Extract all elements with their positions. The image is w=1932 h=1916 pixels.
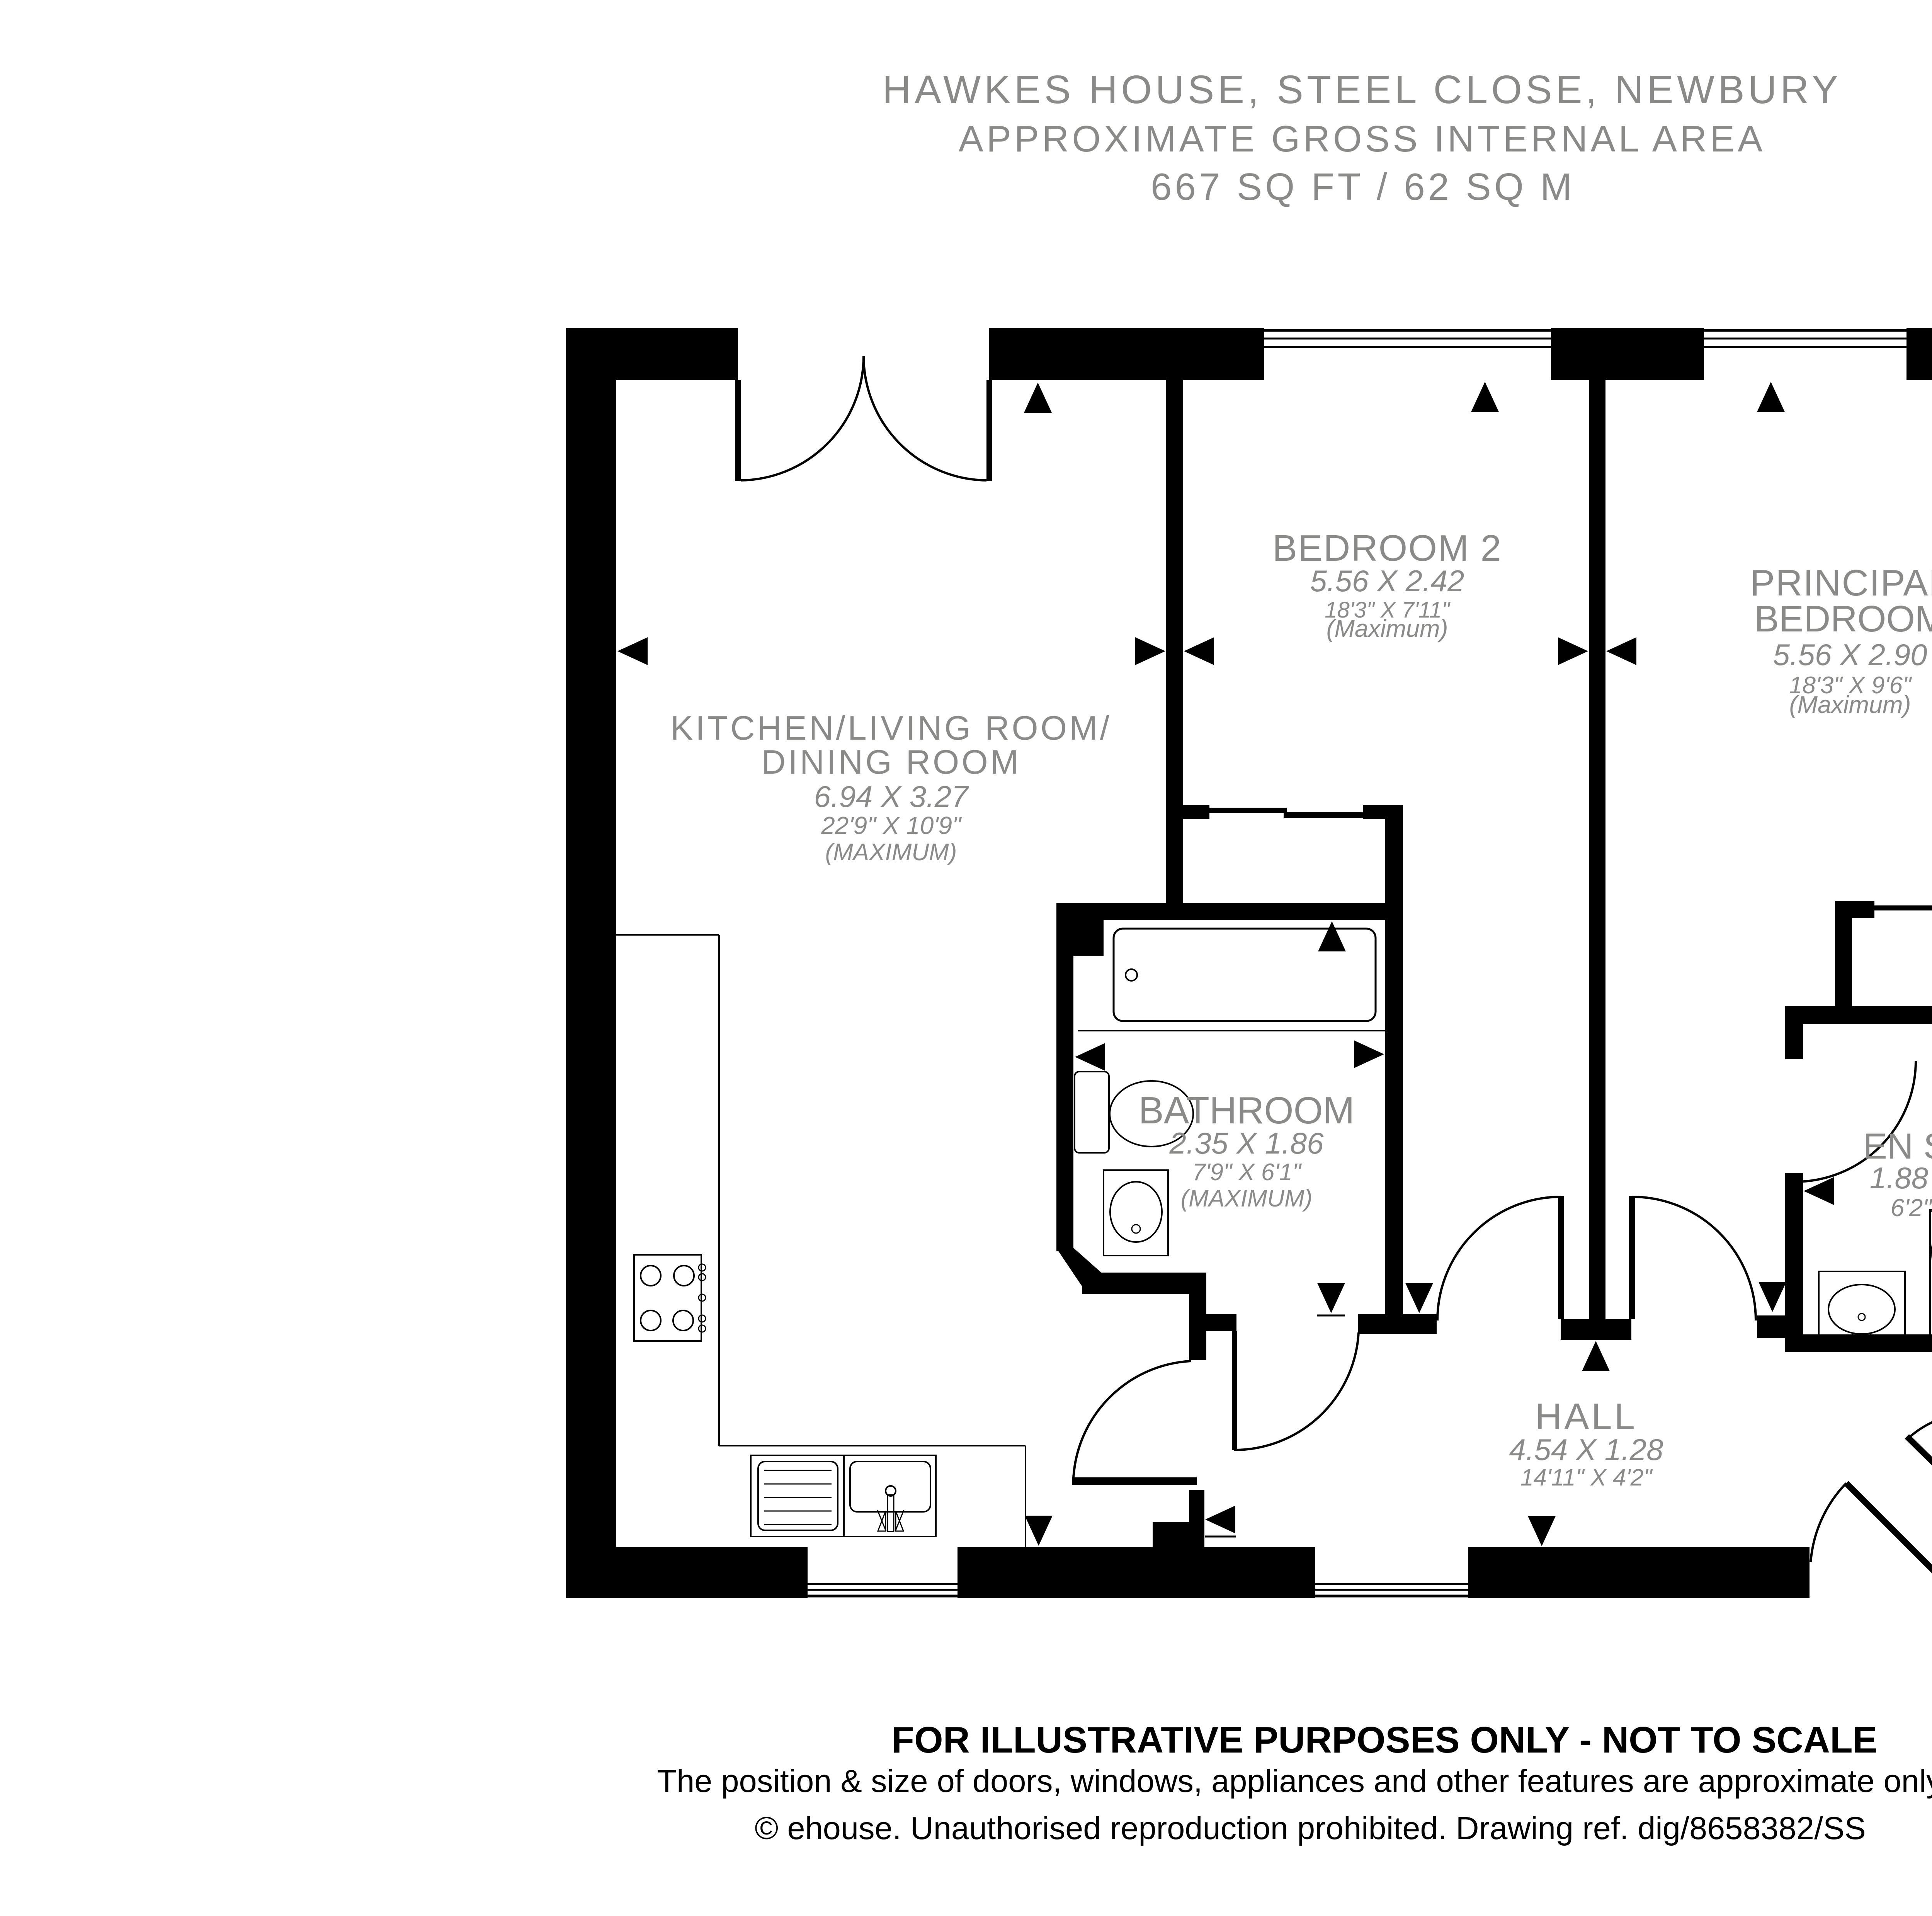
svg-text:BEDROOM: BEDROOM (1754, 598, 1932, 640)
svg-text:DINING ROOM: DINING ROOM (761, 743, 1021, 781)
svg-text:6'2" X 5'8": 6'2" X 5'8" (1891, 1194, 1932, 1222)
svg-text:HAWKES HOUSE, STEEL CLOSE, NEW: HAWKES HOUSE, STEEL CLOSE, NEWBURY (883, 67, 1842, 112)
svg-text:© ehouse. Unauthorised reprodu: © ehouse. Unauthorised reproduction proh… (755, 1810, 1866, 1846)
svg-text:PRINCIPAL: PRINCIPAL (1750, 562, 1932, 604)
svg-text:(MAXIMUM): (MAXIMUM) (1181, 1185, 1313, 1212)
svg-text:APPROXIMATE GROSS INTERNAL ARE: APPROXIMATE GROSS INTERNAL AREA (959, 118, 1765, 160)
svg-text:5.56 X 2.90: 5.56 X 2.90 (1773, 638, 1927, 672)
svg-text:HALL: HALL (1535, 1396, 1637, 1437)
svg-text:4.54 X 1.28: 4.54 X 1.28 (1509, 1433, 1663, 1467)
svg-text:The position & size of doors,: The position & size of doors, windows, a… (657, 1763, 1932, 1799)
svg-text:BATHROOM: BATHROOM (1139, 1089, 1355, 1132)
svg-text:(Maximum): (Maximum) (1327, 615, 1448, 642)
svg-text:BEDROOM 2: BEDROOM 2 (1272, 527, 1502, 569)
svg-text:(Maximum): (Maximum) (1789, 691, 1911, 718)
svg-text:5.56 X 2.42: 5.56 X 2.42 (1310, 564, 1464, 598)
svg-text:2.35 X 1.86: 2.35 X 1.86 (1169, 1126, 1324, 1160)
svg-text:1.88 X 1.73: 1.88 X 1.73 (1870, 1161, 1932, 1195)
svg-text:6.94 X 3.27: 6.94 X 3.27 (814, 779, 969, 813)
svg-text:FOR ILLUSTRATIVE PURPOSES ONLY: FOR ILLUSTRATIVE PURPOSES ONLY - NOT TO … (891, 1719, 1877, 1761)
svg-text:EN SUITE: EN SUITE (1863, 1126, 1932, 1166)
svg-text:22'9" X 10'9": 22'9" X 10'9" (821, 812, 962, 839)
svg-text:14'11" X 4'2": 14'11" X 4'2" (1520, 1464, 1653, 1491)
svg-text:7'9" X 6'1": 7'9" X 6'1" (1192, 1159, 1302, 1186)
svg-text:KITCHEN/LIVING ROOM/: KITCHEN/LIVING ROOM/ (670, 709, 1112, 747)
svg-text:667 SQ FT / 62 SQ M: 667 SQ FT / 62 SQ M (1151, 165, 1575, 208)
svg-text:(MAXIMUM): (MAXIMUM) (825, 839, 957, 866)
